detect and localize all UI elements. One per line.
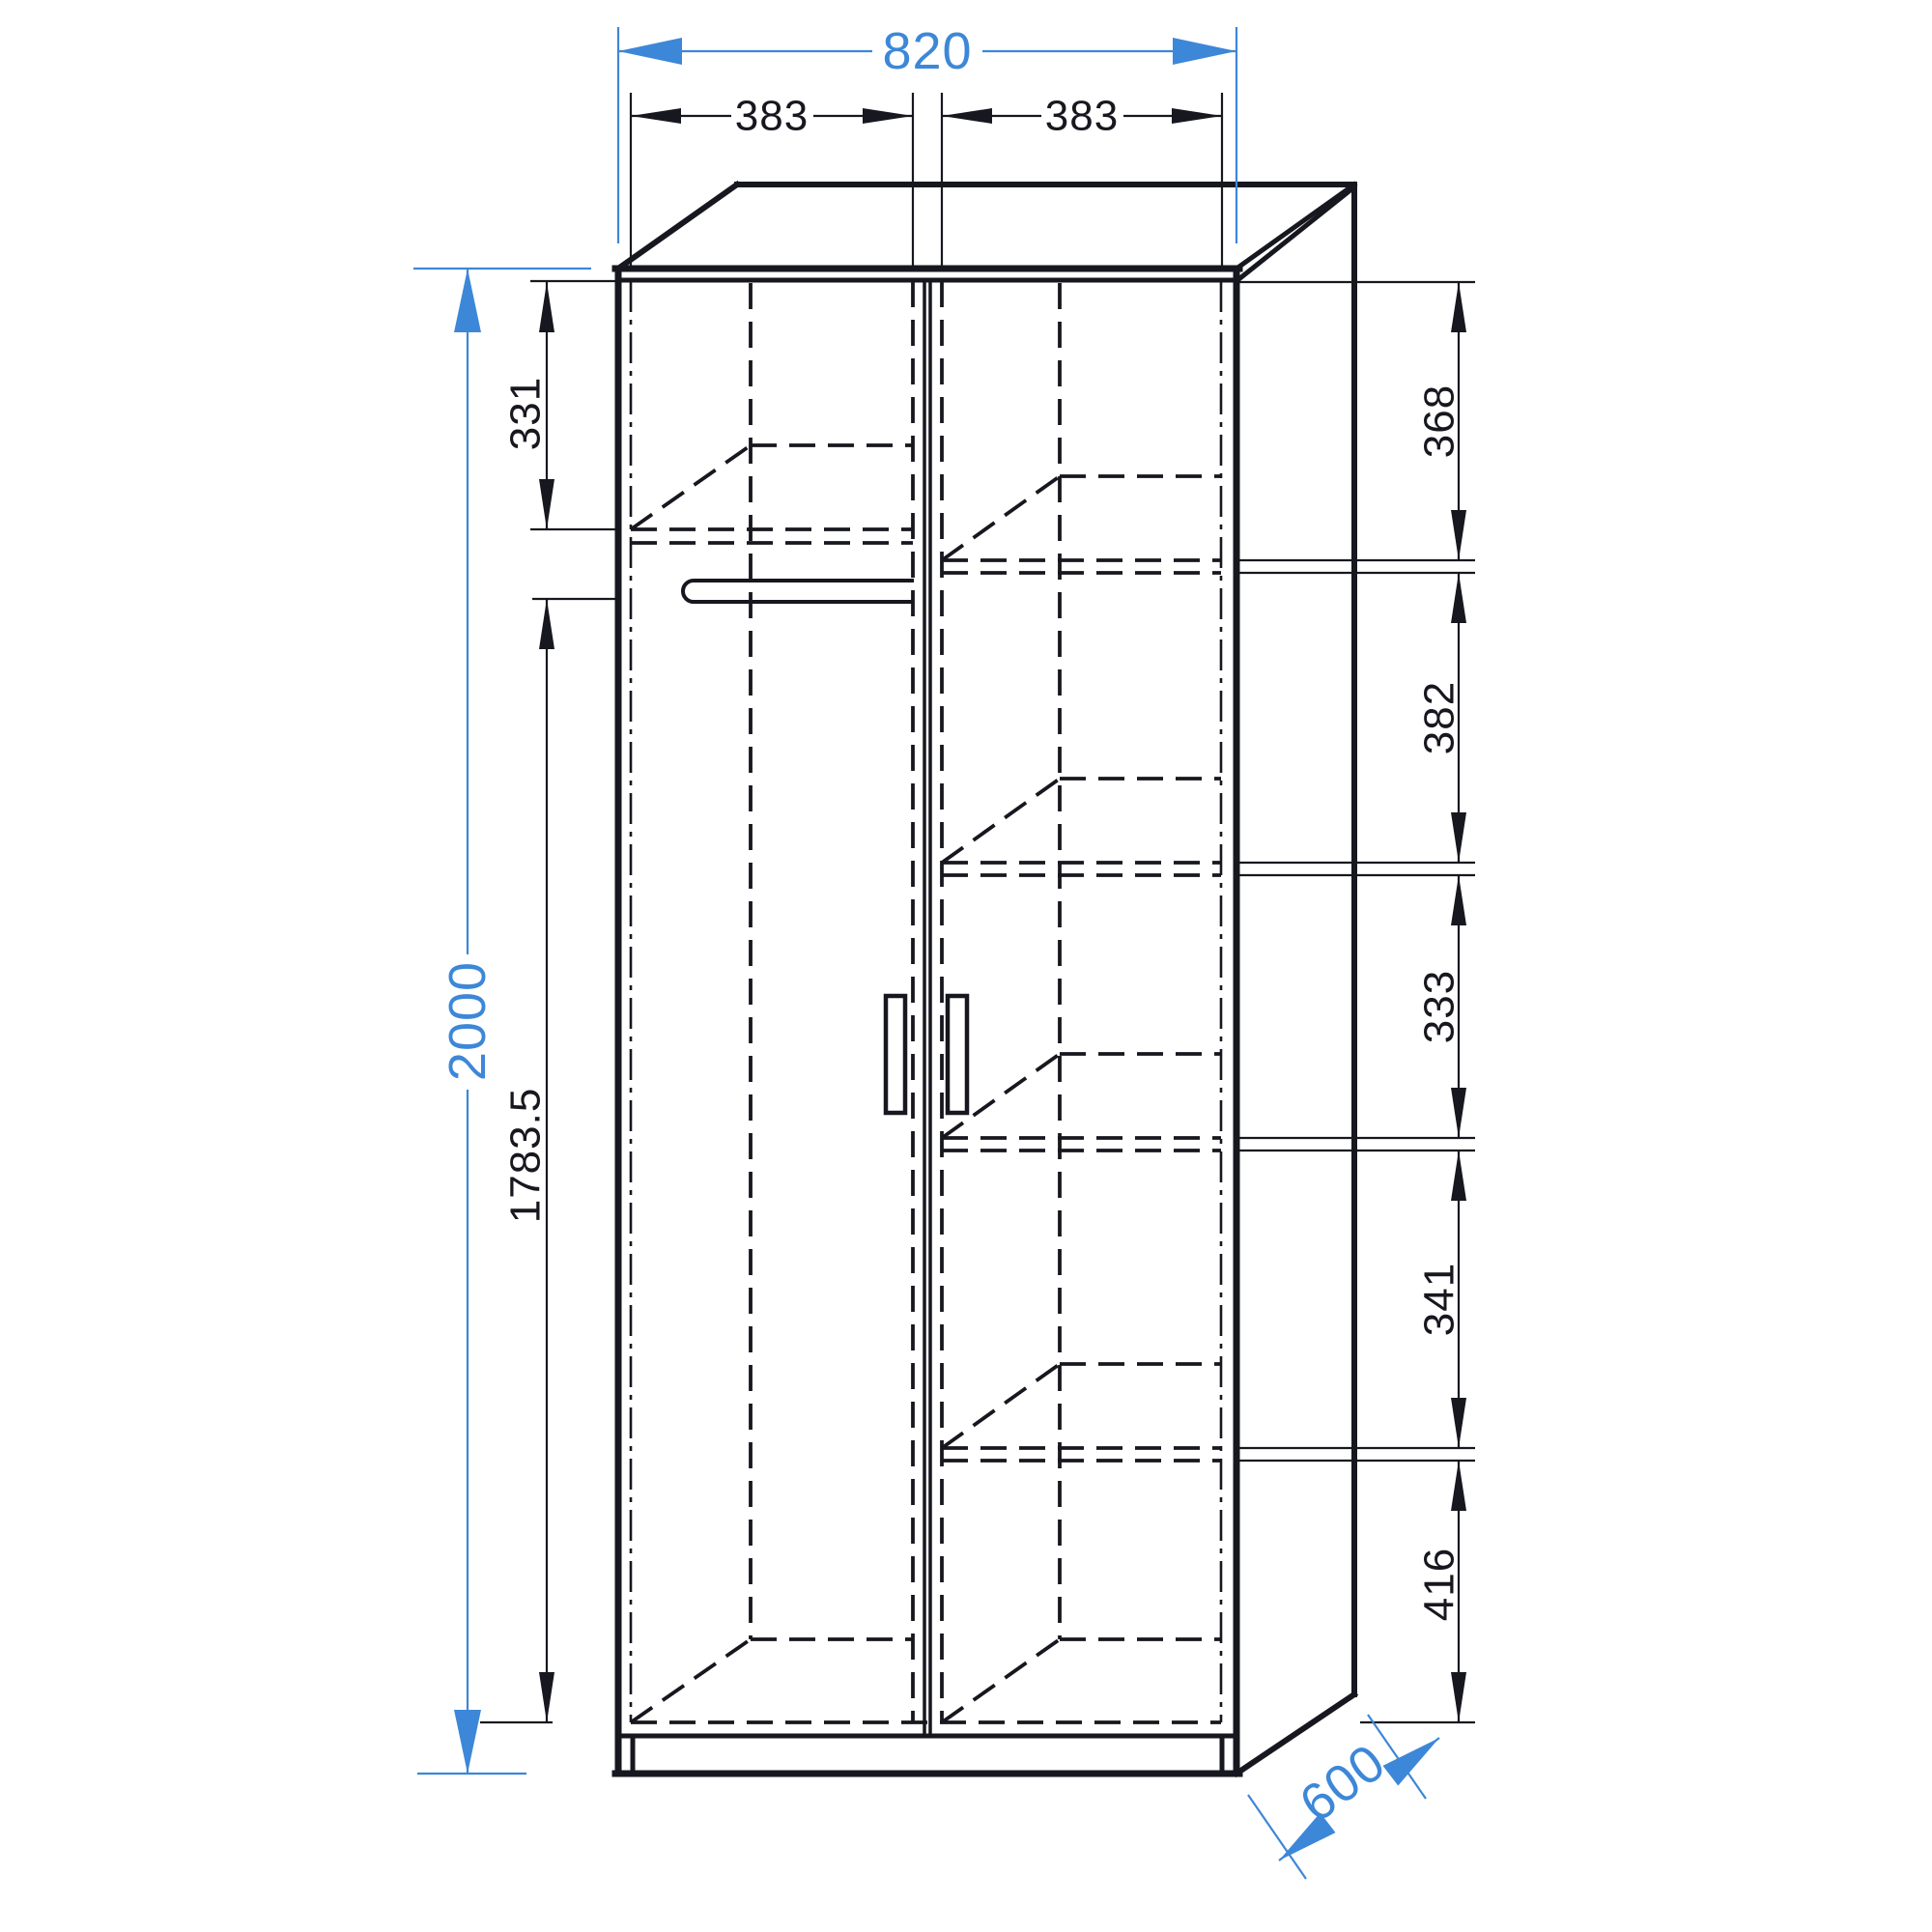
dimension-labels: 820 383 383 2000 331 1783.5 368 382 333 …	[439, 22, 1463, 1833]
label-shelf-gap-3: 333	[1416, 970, 1463, 1043]
label-left-opening: 383	[735, 93, 809, 140]
label-lower-section: 1783.5	[502, 1088, 550, 1224]
right-door-handle	[948, 996, 967, 1113]
door-handles	[886, 996, 967, 1113]
cabinet-solid-outline	[615, 185, 1354, 1774]
drawing-canvas: 820 383 383 2000 331 1783.5 368 382 333 …	[0, 0, 1932, 1932]
label-shelf-gap-2: 382	[1416, 681, 1463, 754]
dimension-lines-black	[547, 116, 1459, 1722]
dimension-extension-lines	[480, 93, 1475, 1722]
label-overall-width: 820	[882, 22, 972, 80]
label-overall-height: 2000	[439, 961, 497, 1081]
label-shelf-gap-1: 368	[1416, 384, 1463, 458]
label-shelf-gap-4: 341	[1416, 1263, 1463, 1336]
dimension-arrows-blue	[454, 38, 1439, 1861]
wardrobe-technical-drawing: 820 383 383 2000 331 1783.5 368 382 333 …	[0, 0, 1932, 1932]
left-door-handle	[886, 996, 905, 1113]
label-right-opening: 383	[1045, 93, 1119, 140]
dimension-arrows-black	[539, 108, 1466, 1722]
label-top-section: 331	[502, 377, 550, 450]
label-depth: 600	[1290, 1733, 1396, 1833]
label-shelf-gap-5: 416	[1416, 1548, 1463, 1621]
hanging-rod	[683, 581, 914, 602]
dimension-lines-blue	[413, 27, 1439, 1879]
